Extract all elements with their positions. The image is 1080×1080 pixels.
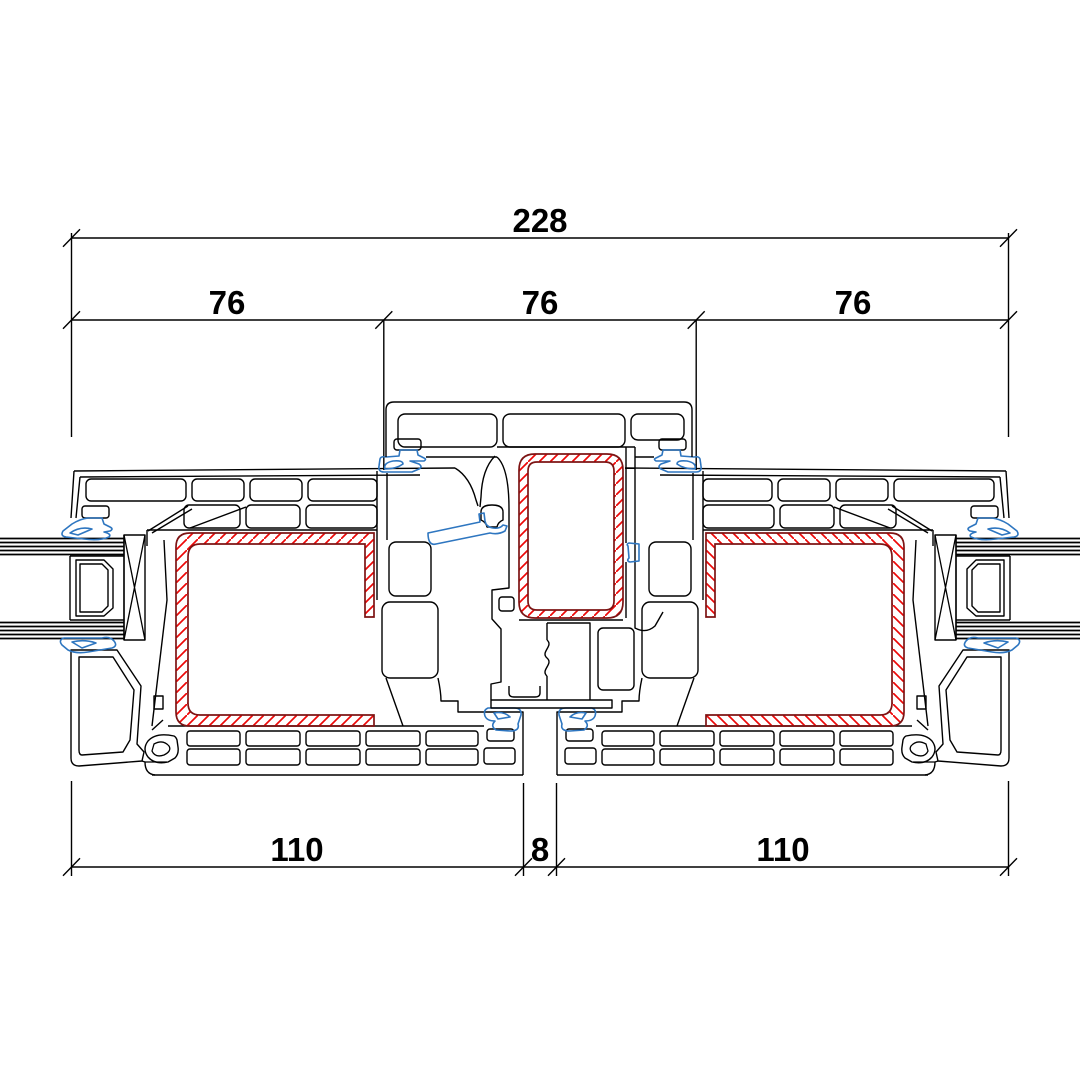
svg-text:8: 8 [531, 831, 549, 868]
svg-text:76: 76 [209, 284, 246, 321]
svg-text:110: 110 [270, 831, 323, 868]
svg-text:76: 76 [835, 284, 872, 321]
svg-text:76: 76 [522, 284, 559, 321]
svg-text:228: 228 [512, 202, 567, 239]
svg-text:110: 110 [756, 831, 809, 868]
